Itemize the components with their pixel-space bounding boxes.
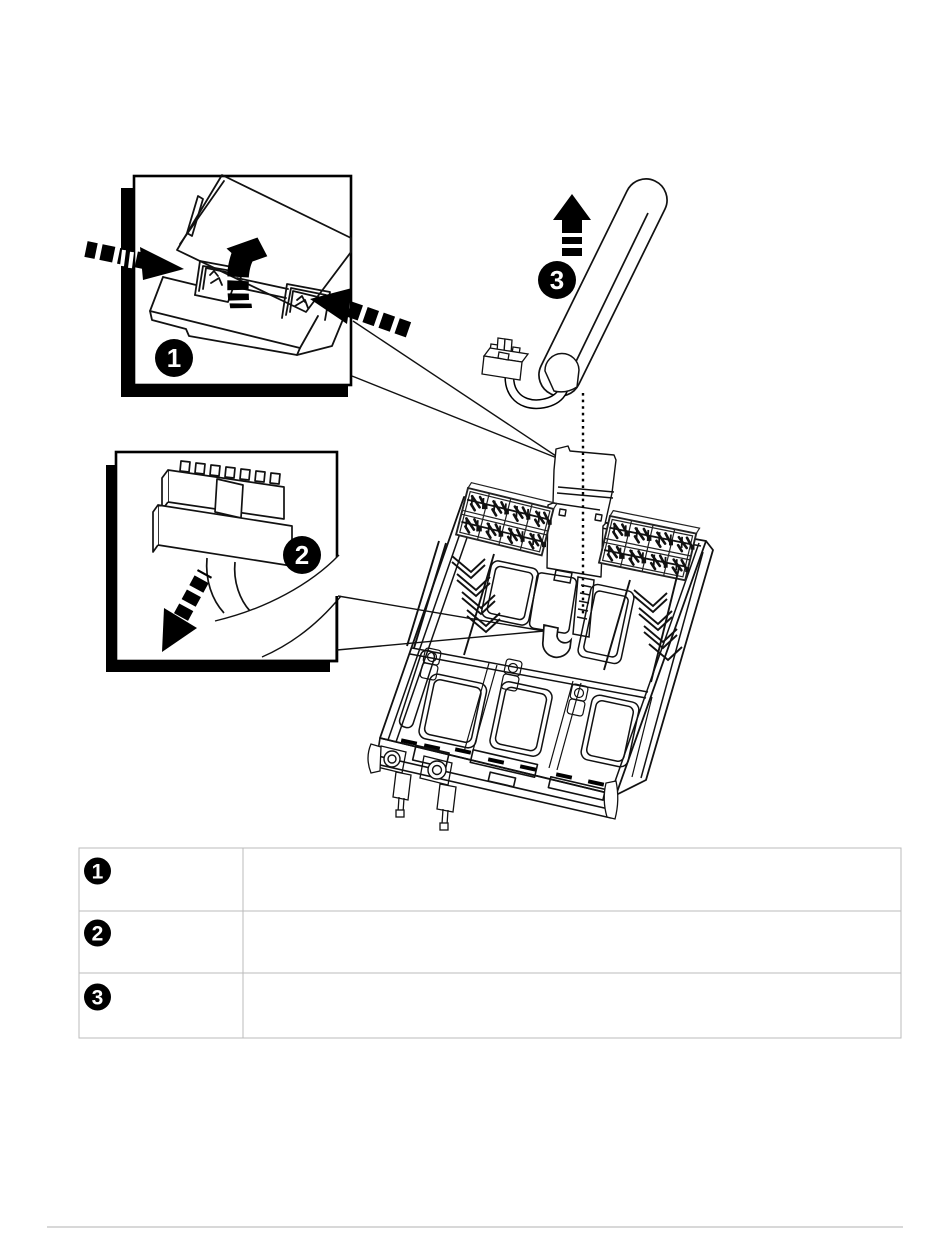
svg-text:2: 2 (92, 923, 104, 946)
svg-text:2: 2 (295, 540, 309, 570)
svg-text:1: 1 (92, 861, 104, 884)
svg-text:3: 3 (550, 265, 564, 295)
svg-text:1: 1 (167, 343, 181, 373)
svg-text:3: 3 (92, 987, 104, 1010)
